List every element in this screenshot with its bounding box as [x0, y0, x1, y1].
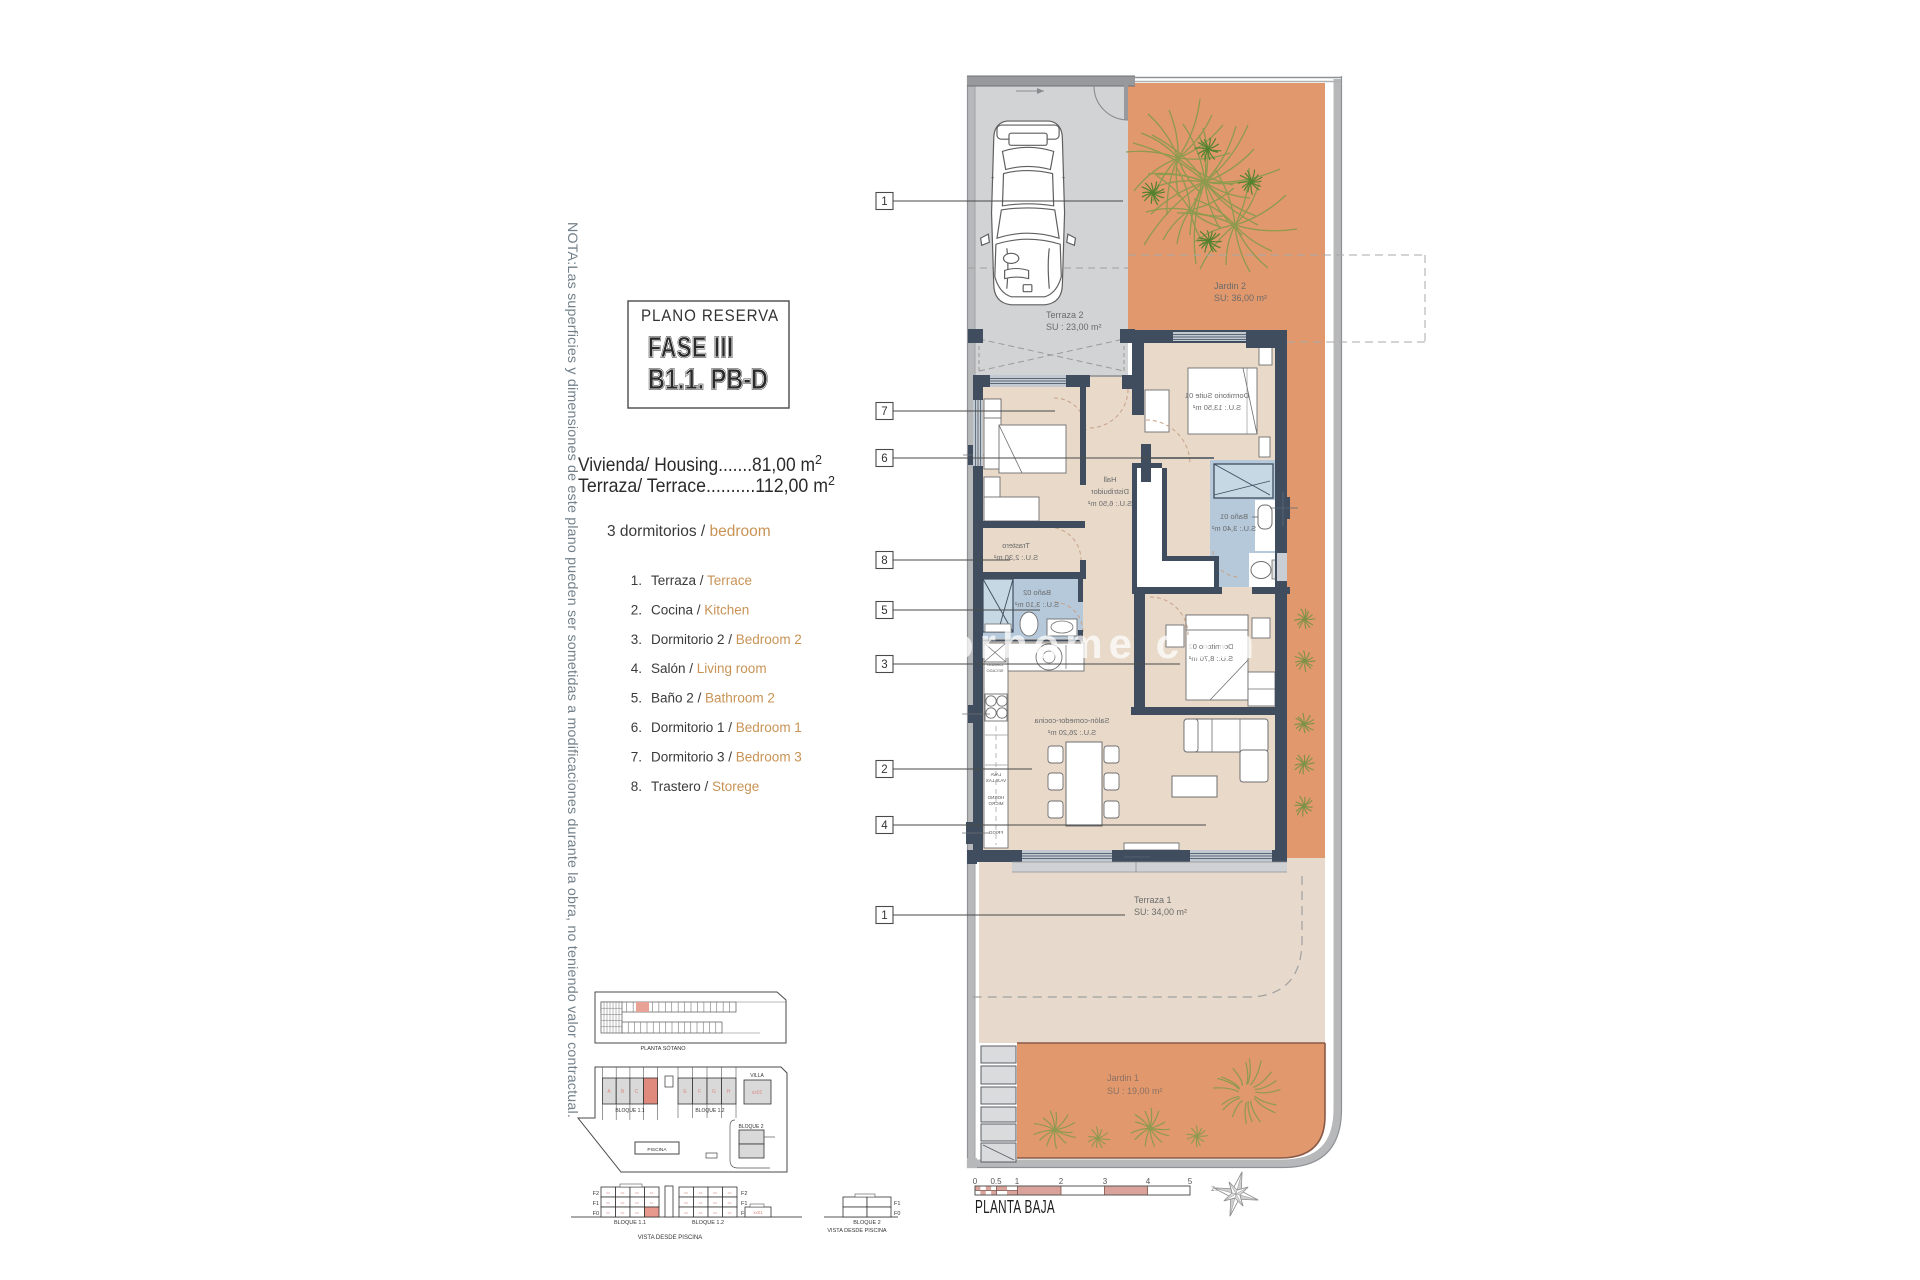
- svg-text:SU: 34,00 m²: SU: 34,00 m²: [1134, 907, 1187, 917]
- svg-text:xx: xx: [635, 1200, 639, 1205]
- svg-text:xx: xx: [728, 1210, 732, 1215]
- svg-text:xx: xx: [713, 1210, 717, 1215]
- svg-text:NOTA:Las superficies y dimensi: NOTA:Las superficies y dimensiones de es…: [565, 222, 581, 1118]
- svg-text:xx01: xx01: [753, 1210, 763, 1215]
- svg-text:HORNO: HORNO: [987, 795, 1004, 800]
- svg-text:3.: 3.: [631, 632, 642, 647]
- svg-text:xx: xx: [621, 1210, 625, 1215]
- svg-text:2: 2: [1059, 1177, 1064, 1186]
- svg-text:Dormitorio 3 / Bedroom 3: Dormitorio 3 / Bedroom 3: [651, 749, 802, 764]
- svg-text:H: H: [727, 1089, 731, 1095]
- svg-text:xx: xx: [684, 1210, 688, 1215]
- svg-text:Dormitorio 2 / Bedroom 2: Dormitorio 2 / Bedroom 2: [651, 632, 802, 647]
- svg-text:S.U.: 2,30 m²: S.U.: 2,30 m²: [993, 553, 1038, 562]
- svg-text:SU : 19,00 m²: SU : 19,00 m²: [1107, 1086, 1163, 1096]
- svg-text:F0: F0: [593, 1211, 599, 1217]
- svg-text:xx01: xx01: [752, 1090, 763, 1096]
- svg-text:SU : 23,00 m²: SU : 23,00 m²: [1046, 322, 1102, 332]
- svg-text:S.U.: 26,20 m²: S.U.: 26,20 m²: [1047, 728, 1096, 737]
- svg-text:xx: xx: [728, 1190, 732, 1195]
- svg-text:xx: xx: [684, 1190, 688, 1195]
- svg-text:xx: xx: [650, 1200, 654, 1205]
- svg-text:xx: xx: [699, 1190, 703, 1195]
- svg-text:Terraza / Terrace: Terraza / Terrace: [651, 573, 752, 588]
- svg-text:Salón / Living room: Salón / Living room: [651, 661, 767, 676]
- svg-text:Jardin 1: Jardin 1: [1107, 1073, 1139, 1083]
- svg-text:G: G: [712, 1089, 716, 1095]
- svg-text:Cocina / Kitchen: Cocina / Kitchen: [651, 602, 749, 617]
- svg-text:BLOQUE 1.1: BLOQUE 1.1: [615, 1108, 644, 1114]
- svg-text:xx: xx: [650, 1190, 654, 1195]
- svg-text:4: 4: [1146, 1177, 1151, 1186]
- svg-text:7: 7: [881, 406, 887, 418]
- svg-text:3: 3: [881, 659, 887, 671]
- svg-text:Terraza 2: Terraza 2: [1046, 310, 1084, 320]
- svg-text:PLANO RESERVA: PLANO RESERVA: [641, 306, 779, 325]
- svg-text:SECADO: SECADO: [987, 668, 1004, 673]
- svg-text:Distribuidor: Distribuidor: [1091, 487, 1129, 496]
- svg-text:F1: F1: [894, 1201, 900, 1207]
- svg-text:F: F: [698, 1089, 701, 1095]
- svg-text:5: 5: [881, 605, 887, 617]
- svg-text:4: 4: [881, 820, 888, 832]
- svg-text:5.: 5.: [631, 691, 642, 706]
- svg-text:LAVA: LAVA: [991, 772, 1002, 777]
- svg-text:xx: xx: [699, 1200, 703, 1205]
- svg-text:Baño 01: Baño 01: [1220, 512, 1248, 521]
- svg-text:VISTA DESDE PISCINA: VISTA DESDE PISCINA: [638, 1235, 703, 1241]
- svg-text:xx: xx: [713, 1200, 717, 1205]
- svg-text:VISTA DESDE PISCINA: VISTA DESDE PISCINA: [827, 1228, 887, 1234]
- svg-text:S.U.: 3,10 m²: S.U.: 3,10 m²: [1014, 600, 1059, 609]
- svg-text:xx: xx: [699, 1210, 703, 1215]
- svg-text:xx: xx: [635, 1190, 639, 1195]
- svg-text:2: 2: [881, 764, 887, 776]
- svg-text:VAJILLAS: VAJILLAS: [986, 778, 1006, 783]
- svg-text:Trastero: Trastero: [1002, 541, 1030, 550]
- svg-text:FASE III: FASE III: [648, 332, 734, 364]
- svg-text:7.: 7.: [631, 749, 642, 764]
- svg-text:0.5: 0.5: [990, 1177, 1002, 1186]
- svg-text:xx: xx: [606, 1210, 610, 1215]
- svg-text:BLOQUE 1.2: BLOQUE 1.2: [692, 1220, 724, 1226]
- svg-text:F1: F1: [593, 1201, 599, 1207]
- svg-text:0: 0: [973, 1177, 978, 1186]
- svg-text:orhome com: orhome com: [948, 620, 1260, 667]
- svg-text:PLANTA BAJA: PLANTA BAJA: [975, 1197, 1055, 1217]
- svg-text:1: 1: [881, 196, 887, 208]
- svg-text:4.: 4.: [631, 661, 642, 676]
- svg-text:Salón-comedor-cocina: Salón-comedor-cocina: [1034, 716, 1110, 725]
- svg-text:2.: 2.: [631, 602, 642, 617]
- svg-text:BLOQUE 2: BLOQUE 2: [853, 1220, 881, 1226]
- svg-text:F0: F0: [894, 1211, 900, 1217]
- svg-text:xx: xx: [713, 1190, 717, 1195]
- svg-text:6.: 6.: [631, 720, 642, 735]
- svg-text:FRIGO: FRIGO: [988, 830, 1003, 835]
- svg-text:Terraza/ Terrace..........112,: Terraza/ Terrace..........112,00 m2: [578, 474, 835, 497]
- svg-text:Baño 2 / Bathroom 2: Baño 2 / Bathroom 2: [651, 691, 775, 706]
- svg-text:xx: xx: [606, 1200, 610, 1205]
- svg-text:Dormitorio Suite 01: Dormitorio Suite 01: [1185, 391, 1249, 400]
- svg-text:Trastero / Storege: Trastero / Storege: [651, 779, 759, 794]
- svg-text:1: 1: [1015, 1177, 1020, 1186]
- svg-text:xx: xx: [728, 1200, 732, 1205]
- svg-text:Hall: Hall: [1103, 475, 1116, 484]
- svg-text:F2: F2: [741, 1191, 747, 1197]
- svg-text:VILLA: VILLA: [750, 1073, 764, 1079]
- svg-text:SU: 36,00 m²: SU: 36,00 m²: [1214, 293, 1267, 303]
- svg-text:xx: xx: [606, 1190, 610, 1195]
- svg-text:F2: F2: [593, 1191, 599, 1197]
- svg-text:B1.1. PB-D: B1.1. PB-D: [648, 364, 768, 396]
- svg-text:S.U.: 6,50 m²: S.U.: 6,50 m²: [1087, 499, 1132, 508]
- svg-text:1: 1: [881, 910, 887, 922]
- svg-text:BLOQUE 1.1: BLOQUE 1.1: [614, 1220, 646, 1226]
- svg-text:3 dormitorios / bedroom: 3 dormitorios / bedroom: [607, 523, 771, 540]
- svg-text:F1: F1: [741, 1201, 747, 1207]
- svg-text:S.U.: 13,50 m²: S.U.: 13,50 m²: [1192, 403, 1241, 412]
- svg-text:z.: z.: [1211, 1184, 1217, 1193]
- svg-text:8.: 8.: [631, 779, 642, 794]
- svg-text:MICRO: MICRO: [988, 801, 1003, 806]
- svg-text:BLOQUE 2: BLOQUE 2: [738, 1124, 763, 1130]
- svg-text:S.U.: 3,40 m²: S.U.: 3,40 m²: [1211, 524, 1256, 533]
- svg-text:8: 8: [881, 555, 887, 567]
- svg-text:3: 3: [1103, 1177, 1108, 1186]
- svg-text:PLANTA SÓTANO: PLANTA SÓTANO: [640, 1045, 686, 1052]
- svg-text:xx: xx: [621, 1200, 625, 1205]
- svg-text:Jardin 2: Jardin 2: [1214, 281, 1246, 291]
- svg-text:1.: 1.: [631, 573, 642, 588]
- svg-text:xx: xx: [684, 1200, 688, 1205]
- svg-text:BLOQUE 1.2: BLOQUE 1.2: [695, 1108, 724, 1114]
- svg-text:xx: xx: [650, 1210, 654, 1215]
- svg-text:C: C: [635, 1089, 639, 1095]
- svg-text:Terraza 1: Terraza 1: [1134, 895, 1172, 905]
- svg-text:6: 6: [881, 453, 887, 465]
- svg-text:Dormitorio 1 / Bedroom 1: Dormitorio 1 / Bedroom 1: [651, 720, 802, 735]
- svg-text:xx: xx: [635, 1210, 639, 1215]
- svg-text:Baño 02: Baño 02: [1023, 588, 1051, 597]
- svg-text:xx: xx: [621, 1190, 625, 1195]
- svg-text:5: 5: [1188, 1177, 1193, 1186]
- svg-text:PISCINA: PISCINA: [647, 1147, 667, 1153]
- svg-text:Vivienda/ Housing.......81,00: Vivienda/ Housing.......81,00 m2: [578, 453, 822, 476]
